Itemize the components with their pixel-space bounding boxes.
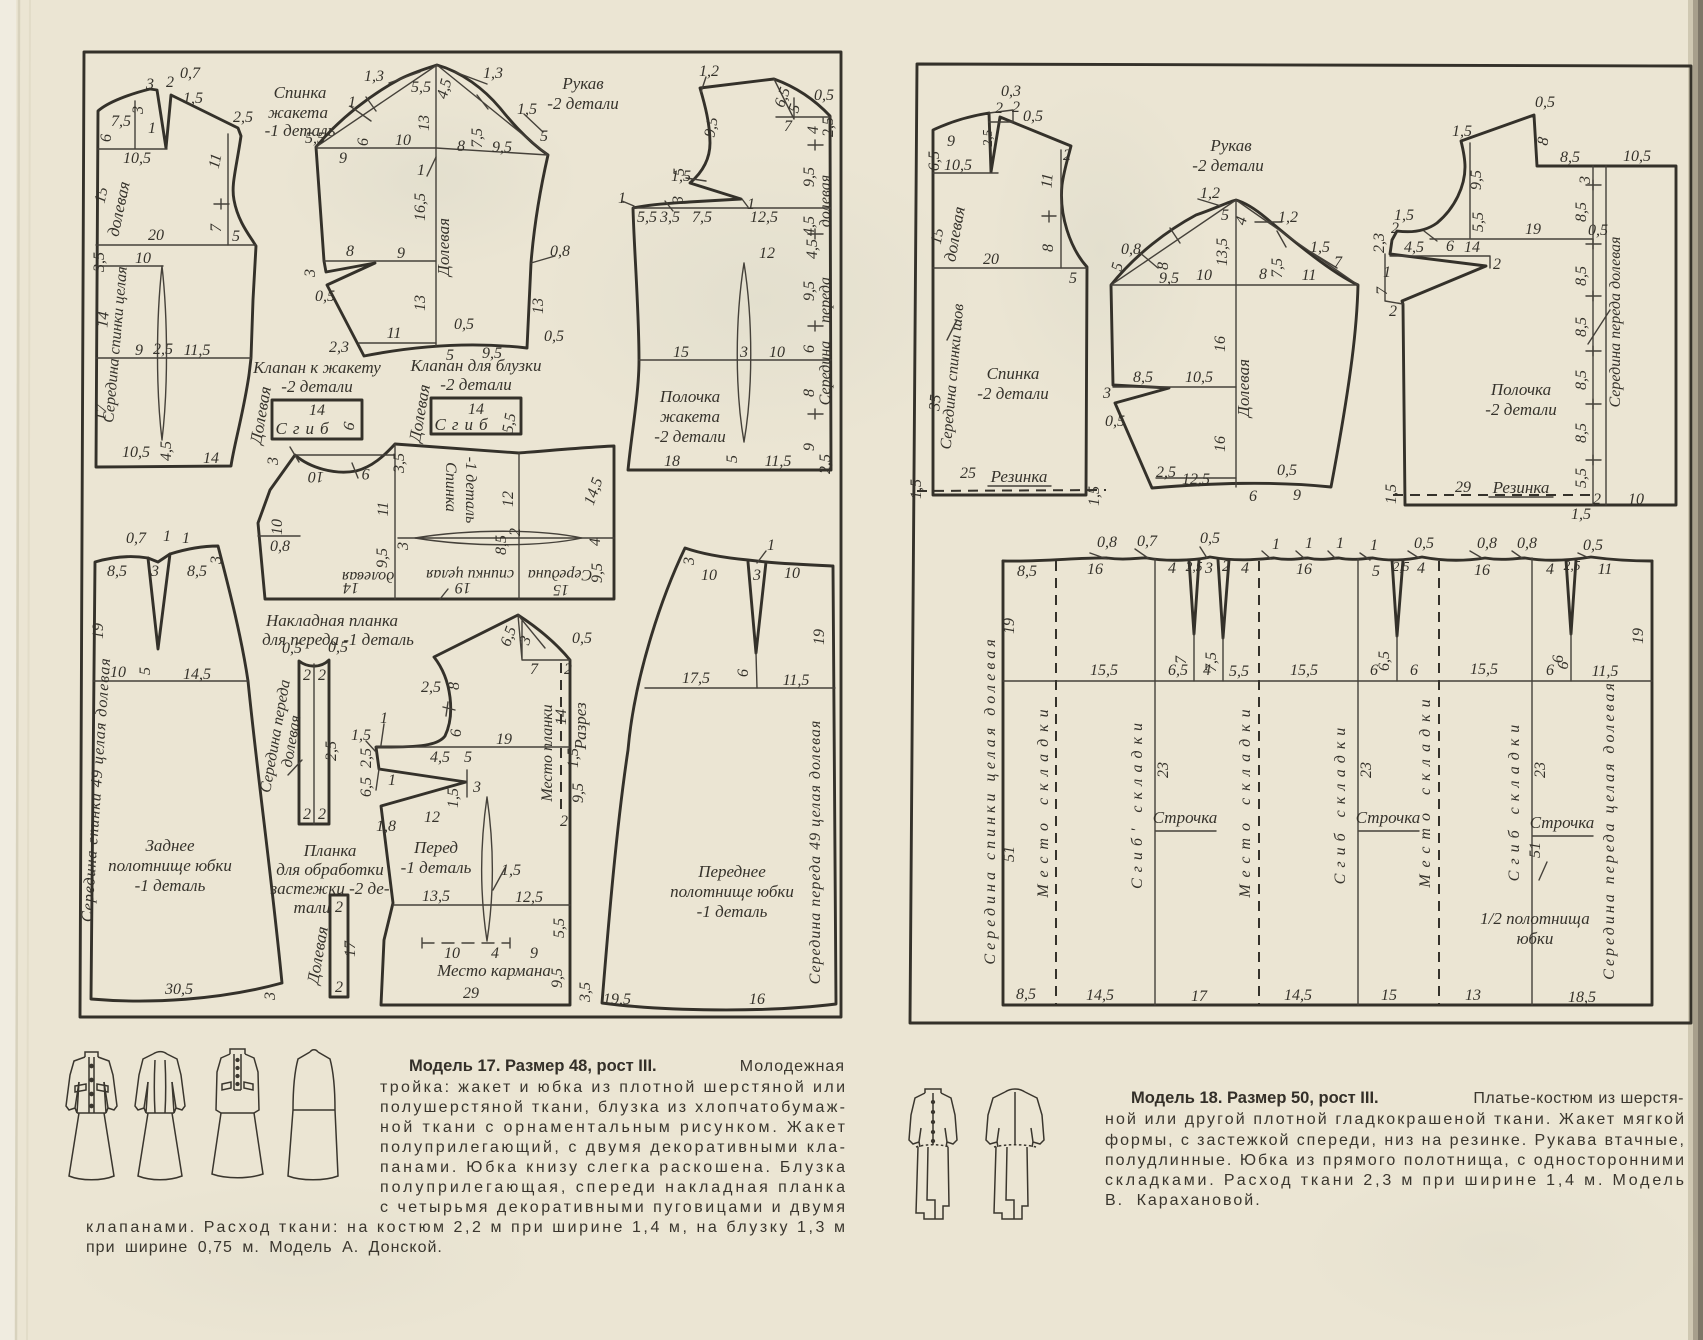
svg-text:Долевая: Долевая (1234, 359, 1253, 419)
svg-text:1,3: 1,3 (483, 65, 503, 82)
svg-text:5,5: 5,5 (1573, 468, 1590, 488)
svg-text:4: 4 (587, 538, 604, 546)
svg-text:1: 1 (767, 537, 775, 554)
svg-text:0,3: 0,3 (1001, 83, 1021, 100)
svg-text:12,5: 12,5 (1182, 471, 1210, 488)
svg-text:14: 14 (203, 450, 219, 467)
svg-text:1,5: 1,5 (565, 748, 582, 768)
svg-text:Спинка: Спинка (987, 364, 1040, 383)
svg-text:Резинка: Резинка (1492, 478, 1550, 497)
svg-text:2,5: 2,5 (1186, 559, 1203, 574)
svg-text:1: 1 (417, 162, 425, 179)
svg-text:8,5: 8,5 (1017, 563, 1037, 580)
svg-text:20: 20 (148, 227, 164, 244)
svg-text:16: 16 (1296, 561, 1312, 578)
svg-text:7,5: 7,5 (469, 128, 486, 148)
svg-text:16: 16 (749, 991, 765, 1008)
svg-text:13: 13 (1465, 987, 1481, 1004)
svg-text:5: 5 (540, 128, 548, 145)
svg-text:Середина переда долевая: Середина переда долевая (1607, 237, 1624, 408)
svg-text:-1 деталь: -1 деталь (462, 457, 479, 524)
svg-text:6,5: 6,5 (1376, 651, 1393, 671)
svg-text:3: 3 (208, 556, 225, 565)
svg-text:0,5: 0,5 (1414, 535, 1434, 552)
svg-text:23: 23 (1532, 762, 1549, 778)
svg-text:-1 деталь: -1 деталь (135, 876, 206, 895)
svg-text:18: 18 (664, 453, 680, 470)
svg-text:11: 11 (1302, 267, 1317, 284)
svg-text:11: 11 (1038, 172, 1056, 188)
svg-text:0,5: 0,5 (1023, 108, 1043, 125)
svg-text:Сгиб складки: Сгиб складки (1332, 722, 1349, 885)
svg-text:0,7: 0,7 (126, 530, 147, 547)
svg-text:Строчка: Строчка (1153, 808, 1218, 827)
svg-text:2: 2 (303, 806, 311, 823)
svg-text:3: 3 (472, 779, 481, 796)
svg-text:2: 2 (335, 979, 343, 996)
svg-text:11,5: 11,5 (765, 453, 792, 470)
svg-text:10: 10 (308, 468, 324, 485)
svg-text:4,5: 4,5 (1404, 239, 1424, 256)
svg-text:2: 2 (1593, 491, 1601, 508)
svg-text:-2 детали: -2 детали (547, 94, 618, 113)
svg-text:2: 2 (1391, 220, 1399, 237)
svg-text:23: 23 (1155, 762, 1172, 778)
svg-text:4,5: 4,5 (158, 441, 175, 461)
svg-text:3: 3 (1102, 385, 1111, 402)
svg-text:3: 3 (395, 542, 412, 551)
svg-text:6: 6 (1546, 662, 1554, 679)
svg-text:1,5: 1,5 (445, 788, 462, 808)
svg-text:2: 2 (318, 806, 326, 823)
svg-text:0,5: 0,5 (1200, 530, 1220, 547)
svg-text:14,5: 14,5 (1284, 987, 1312, 1004)
svg-text:Место складки: Место складки (1417, 692, 1434, 888)
svg-text:2: 2 (507, 528, 524, 536)
svg-text:9,5: 9,5 (374, 548, 391, 568)
svg-text:19: 19 (496, 731, 512, 748)
svg-text:5: 5 (232, 228, 240, 245)
svg-text:10: 10 (395, 132, 411, 149)
svg-text:4: 4 (1417, 560, 1425, 577)
svg-text:13: 13 (530, 298, 547, 314)
svg-text:Полочка: Полочка (659, 387, 720, 406)
svg-text:3: 3 (1577, 176, 1594, 185)
svg-text:12: 12 (424, 809, 440, 826)
svg-text:12: 12 (500, 491, 517, 507)
svg-text:2,5: 2,5 (421, 679, 441, 696)
svg-text:Полочка: Полочка (1490, 380, 1551, 399)
svg-text:2,5: 2,5 (323, 741, 340, 761)
svg-text:Переднее: Переднее (697, 862, 766, 881)
svg-text:0,5: 0,5 (454, 316, 474, 333)
svg-text:15,5: 15,5 (1470, 661, 1498, 678)
svg-text:2: 2 (564, 661, 572, 678)
svg-text:Модель 18. Размер 50, рост III: Модель 18. Размер 50, рост III. (1131, 1089, 1379, 1107)
svg-text:-1 деталь: -1 деталь (401, 858, 472, 877)
svg-text:полудлинные. Юбка из прямого п: полудлинные. Юбка из прямого полотнища, … (1105, 1152, 1684, 1169)
svg-text:2,5: 2,5 (980, 129, 995, 146)
svg-text:6: 6 (1410, 662, 1418, 679)
svg-text:8: 8 (346, 243, 354, 260)
svg-text:0,5: 0,5 (1105, 413, 1125, 430)
svg-text:11: 11 (375, 502, 392, 517)
svg-text:складками. Расход ткани 2,3 м: складками. Расход ткани 2,3 м при ширине… (1105, 1172, 1684, 1189)
svg-text:2: 2 (303, 667, 311, 684)
svg-text:Разрез: Разрез (571, 702, 590, 751)
svg-text:12,5: 12,5 (515, 889, 543, 906)
svg-text:спинки целая: спинки целая (426, 566, 514, 583)
svg-text:2,5: 2,5 (1393, 559, 1410, 574)
svg-text:2: 2 (1389, 303, 1397, 320)
svg-text:10: 10 (135, 250, 151, 267)
svg-text:6: 6 (1446, 238, 1454, 255)
svg-text:для обработки: для обработки (276, 860, 384, 879)
svg-text:3: 3 (752, 567, 761, 584)
svg-text:7: 7 (784, 118, 793, 135)
svg-text:1: 1 (618, 190, 626, 207)
svg-text:9: 9 (135, 342, 143, 359)
svg-text:17: 17 (342, 940, 359, 957)
svg-text:1: 1 (182, 530, 190, 547)
svg-text:1: 1 (1305, 535, 1313, 552)
svg-text:8,5: 8,5 (1573, 370, 1590, 390)
svg-text:0,7: 0,7 (1137, 533, 1158, 550)
svg-text:долевая: долевая (817, 175, 834, 227)
svg-text:4: 4 (491, 945, 499, 962)
svg-text:1,5: 1,5 (1571, 506, 1591, 523)
svg-text:9,5: 9,5 (589, 563, 606, 583)
svg-text:1,5: 1,5 (908, 479, 925, 499)
svg-text:10: 10 (444, 945, 460, 962)
svg-text:13,5: 13,5 (1214, 238, 1231, 266)
svg-text:5: 5 (724, 455, 741, 463)
svg-text:4,5: 4,5 (804, 239, 821, 259)
svg-text:51: 51 (1527, 842, 1544, 858)
svg-text:15: 15 (673, 344, 689, 361)
svg-text:19,5: 19,5 (603, 991, 631, 1008)
svg-text:8,5: 8,5 (1016, 986, 1036, 1003)
svg-text:1,5: 1,5 (501, 862, 521, 879)
svg-text:9,5: 9,5 (549, 968, 566, 988)
svg-text:1,2: 1,2 (699, 63, 719, 80)
svg-text:4: 4 (1241, 560, 1249, 577)
svg-text:1: 1 (148, 120, 156, 137)
svg-text:5: 5 (1221, 207, 1229, 224)
svg-text:6: 6 (355, 138, 372, 146)
svg-text:4: 4 (1168, 560, 1176, 577)
svg-text:10,5: 10,5 (1623, 148, 1651, 165)
svg-text:Планка: Планка (303, 841, 357, 860)
svg-text:1: 1 (348, 94, 356, 111)
svg-text:0,8: 0,8 (1517, 535, 1537, 552)
svg-text:-2 детали: -2 детали (654, 427, 725, 446)
svg-text:5,5: 5,5 (499, 412, 519, 435)
svg-text:Модель 17. Размер 48, рост III: Модель 17. Размер 48, рост III. (409, 1057, 657, 1075)
svg-text:полуприлегающий, с двумя декор: полуприлегающий, с двумя декоративными к… (380, 1139, 845, 1156)
svg-text:15: 15 (1381, 987, 1397, 1004)
svg-text:0,8: 0,8 (1477, 535, 1497, 552)
svg-text:Место кармана: Место кармана (436, 961, 551, 980)
svg-text:8: 8 (1155, 262, 1172, 270)
svg-text:3: 3 (739, 344, 748, 361)
svg-text:8: 8 (801, 389, 818, 397)
svg-text:2: 2 (335, 899, 343, 916)
svg-text:Спинка: Спинка (274, 83, 327, 102)
svg-text:Спинка: Спинка (442, 462, 459, 512)
svg-text:1,2: 1,2 (1278, 209, 1298, 226)
svg-text:0,8: 0,8 (270, 538, 290, 555)
svg-text:9,5: 9,5 (1468, 170, 1485, 190)
svg-text:3: 3 (670, 196, 687, 205)
svg-text:6: 6 (1249, 488, 1257, 505)
svg-text:51: 51 (1001, 846, 1018, 862)
svg-text:Сгиб: Сгиб (434, 415, 493, 434)
svg-text:10,5: 10,5 (123, 150, 151, 167)
svg-text:17: 17 (1191, 988, 1208, 1005)
svg-text:1: 1 (1336, 535, 1344, 552)
svg-text:14,5: 14,5 (1086, 987, 1114, 1004)
svg-text:2: 2 (560, 813, 568, 830)
svg-text:6,5: 6,5 (1168, 662, 1188, 679)
svg-text:3: 3 (145, 76, 154, 93)
svg-text:Середина: Середина (817, 341, 834, 406)
svg-text:8: 8 (1259, 266, 1267, 283)
svg-text:20: 20 (983, 251, 999, 268)
svg-text:1,5: 1,5 (1383, 484, 1400, 504)
svg-text:16: 16 (1087, 561, 1103, 578)
svg-text:полотнище юбки: полотнище юбки (108, 856, 232, 875)
svg-text:полотнище юбки: полотнище юбки (670, 882, 794, 901)
svg-text:2,5: 2,5 (820, 117, 837, 137)
svg-text:1,2: 1,2 (1200, 185, 1220, 202)
svg-text:Место складки: Место складки (1035, 702, 1052, 898)
svg-text:13: 13 (412, 295, 429, 311)
svg-text:9: 9 (530, 945, 538, 962)
svg-text:9,5: 9,5 (801, 281, 818, 301)
svg-text:-2 детали: -2 детали (281, 377, 352, 396)
svg-text:1,8: 1,8 (376, 818, 396, 835)
svg-text:0,7: 0,7 (180, 65, 201, 82)
svg-text:10: 10 (1628, 491, 1644, 508)
svg-text:7,5: 7,5 (111, 113, 131, 130)
svg-text:Строчка: Строчка (1356, 808, 1421, 827)
svg-text:3,5: 3,5 (391, 453, 408, 474)
svg-text:В. Карахановой.: В. Карахановой. (1105, 1192, 1262, 1209)
svg-text:0,5: 0,5 (814, 87, 834, 104)
svg-text:9: 9 (362, 465, 370, 482)
svg-text:9,5: 9,5 (570, 783, 587, 803)
svg-text:0,8: 0,8 (1121, 241, 1141, 258)
svg-text:жакета: жакета (268, 103, 328, 122)
svg-text:8,5: 8,5 (107, 563, 127, 580)
svg-text:1/2 полотнища: 1/2 полотнища (1480, 909, 1590, 928)
svg-text:5,5: 5,5 (411, 79, 431, 96)
svg-text:8,5: 8,5 (1573, 423, 1590, 443)
svg-text:застежки -2 де-: застежки -2 де- (269, 879, 389, 898)
svg-text:8,5: 8,5 (1560, 149, 1580, 166)
svg-text:Платье-костюм из шерстя-: Платье-костюм из шерстя- (1473, 1090, 1684, 1107)
svg-text:6: 6 (1370, 662, 1378, 679)
svg-text:ной или другой плотной гладкок: ной или другой плотной гладкокрашеной тк… (1105, 1111, 1684, 1128)
svg-text:3: 3 (1204, 560, 1213, 577)
svg-text:15,5: 15,5 (1090, 662, 1118, 679)
svg-text:6,5: 6,5 (926, 151, 943, 171)
svg-text:2: 2 (1222, 558, 1230, 575)
svg-text:19: 19 (1525, 221, 1541, 238)
svg-text:9: 9 (339, 150, 347, 167)
svg-text:11,5: 11,5 (184, 342, 211, 359)
svg-text:12: 12 (759, 245, 775, 262)
svg-text:юбки: юбки (1517, 929, 1554, 948)
svg-text:Место складки: Место складки (1237, 702, 1254, 898)
svg-text:0,5: 0,5 (1277, 462, 1297, 479)
svg-text:2,5: 2,5 (153, 341, 173, 358)
svg-text:2,5: 2,5 (1156, 464, 1176, 481)
svg-text:19: 19 (1001, 618, 1018, 634)
svg-text:Заднее: Заднее (145, 836, 194, 855)
svg-text:-1 деталь: -1 деталь (697, 902, 768, 921)
svg-text:13: 13 (416, 115, 433, 131)
svg-text:2,3: 2,3 (1371, 233, 1388, 253)
svg-text:3: 3 (262, 992, 279, 1001)
svg-text:14: 14 (309, 402, 325, 419)
svg-text:15: 15 (553, 581, 569, 598)
svg-text:1: 1 (388, 772, 396, 789)
svg-text:при ширине 0,75 м. Модель А. Д: при ширине 0,75 м. Модель А. Донской. (86, 1239, 443, 1256)
svg-text:Место планки: Место планки (539, 704, 556, 802)
svg-text:5,5: 5,5 (1229, 663, 1249, 680)
svg-text:для переда -1 деталь: для переда -1 деталь (262, 630, 414, 649)
svg-text:-2 детали: -2 детали (977, 384, 1048, 403)
svg-text:2: 2 (1063, 147, 1071, 164)
svg-text:1: 1 (1383, 264, 1391, 281)
svg-text:7: 7 (1374, 286, 1391, 295)
svg-text:Накладная планка: Накладная планка (265, 611, 398, 630)
svg-text:0,5: 0,5 (1535, 94, 1555, 111)
svg-text:7: 7 (1334, 254, 1343, 271)
svg-text:Сгиб складки: Сгиб складки (1506, 719, 1523, 882)
svg-text:29: 29 (463, 985, 479, 1002)
svg-text:29: 29 (1455, 479, 1471, 496)
svg-text:Клапан к жакету: Клапан к жакету (252, 358, 381, 377)
svg-text:18,5: 18,5 (1568, 989, 1596, 1006)
svg-text:10: 10 (1196, 267, 1212, 284)
svg-text:19: 19 (1630, 628, 1647, 644)
svg-text:8: 8 (1040, 244, 1057, 252)
svg-text:1,5: 1,5 (183, 90, 203, 107)
svg-text:6: 6 (448, 729, 465, 737)
svg-text:Строчка: Строчка (1530, 813, 1595, 832)
svg-text:9: 9 (1293, 487, 1301, 504)
svg-text:11,5: 11,5 (783, 672, 810, 689)
svg-text:2: 2 (995, 100, 1003, 117)
svg-text:1,5: 1,5 (351, 727, 371, 744)
svg-text:1: 1 (163, 528, 171, 545)
svg-text:7,5: 7,5 (692, 209, 712, 226)
svg-text:2,5: 2,5 (1564, 558, 1581, 573)
svg-text:8,5: 8,5 (1573, 266, 1590, 286)
svg-text:9: 9 (947, 133, 955, 150)
svg-text:3: 3 (681, 557, 698, 566)
svg-text:6: 6 (735, 669, 752, 677)
svg-text:5,5: 5,5 (305, 130, 325, 147)
svg-text:Молодежная: Молодежная (740, 1058, 845, 1075)
svg-text:4: 4 (1203, 662, 1211, 679)
svg-text:3,5: 3,5 (577, 982, 594, 1003)
svg-text:10,5: 10,5 (122, 444, 150, 461)
svg-text:14,5: 14,5 (183, 666, 211, 683)
svg-text:16: 16 (1212, 436, 1229, 452)
svg-text:Сгиб: Сгиб (275, 419, 334, 438)
svg-text:10,5: 10,5 (944, 157, 972, 174)
svg-text:5,5: 5,5 (637, 209, 657, 226)
svg-text:5: 5 (137, 667, 154, 675)
svg-text:15,5: 15,5 (1290, 662, 1318, 679)
svg-text:6,5: 6,5 (358, 777, 375, 797)
svg-text:5: 5 (1069, 270, 1077, 287)
svg-text:Долевая: Долевая (434, 218, 453, 278)
svg-text:2: 2 (166, 74, 174, 91)
svg-text:11: 11 (1598, 561, 1613, 578)
svg-text:8,5: 8,5 (493, 535, 510, 555)
svg-text:3: 3 (302, 269, 319, 278)
svg-text:Сгиб' складки: Сгиб' складки (1129, 717, 1146, 889)
svg-text:0,5: 0,5 (1588, 222, 1608, 239)
svg-text:5,5: 5,5 (1470, 212, 1487, 232)
svg-text:10: 10 (701, 567, 717, 584)
svg-text:4: 4 (1546, 561, 1554, 578)
svg-text:Рукав: Рукав (561, 74, 604, 93)
svg-text:Середина переда 49 целая долев: Середина переда 49 целая долевая (807, 720, 824, 985)
svg-text:13,5: 13,5 (422, 888, 450, 905)
svg-text:долевая: долевая (342, 568, 394, 585)
svg-text:Клапан для блузки: Клапан для блузки (410, 356, 542, 375)
svg-text:9,5: 9,5 (492, 139, 512, 156)
svg-text:0,8: 0,8 (1097, 534, 1117, 551)
svg-text:23: 23 (1358, 762, 1375, 778)
svg-text:1: 1 (380, 710, 388, 727)
svg-text:Середина спинки целая долевая: Середина спинки целая долевая (982, 635, 999, 964)
svg-text:0,5: 0,5 (315, 288, 335, 305)
svg-text:Перед: Перед (413, 838, 458, 857)
svg-text:2,5: 2,5 (817, 454, 834, 474)
svg-text:9,5: 9,5 (801, 167, 818, 187)
svg-text:5: 5 (464, 749, 472, 766)
svg-text:1,5: 1,5 (1452, 123, 1472, 140)
svg-text:1,3: 1,3 (364, 68, 384, 85)
svg-text:1: 1 (1370, 537, 1378, 554)
svg-text:переда: переда (817, 277, 834, 323)
svg-text:7,5: 7,5 (1269, 258, 1286, 278)
svg-text:11,5: 11,5 (1592, 663, 1619, 680)
svg-text:2,5: 2,5 (358, 748, 375, 768)
svg-text:Середина: Середина (528, 566, 593, 583)
svg-text:25: 25 (960, 465, 976, 482)
svg-text:9,5: 9,5 (701, 116, 721, 139)
svg-text:4,5: 4,5 (801, 216, 818, 236)
svg-text:10: 10 (769, 344, 785, 361)
svg-text:16,5: 16,5 (412, 193, 429, 221)
svg-text:10: 10 (784, 565, 800, 582)
svg-text:9: 9 (397, 245, 405, 262)
svg-text:16: 16 (1474, 562, 1490, 579)
svg-text:1: 1 (1272, 536, 1280, 553)
svg-text:5,5: 5,5 (551, 918, 568, 938)
svg-text:ной ткани с орнаментальным рис: ной ткани с орнаментальным рисунком. Жак… (380, 1119, 846, 1136)
svg-text:7: 7 (208, 223, 225, 232)
svg-text:8,5: 8,5 (1573, 202, 1590, 222)
